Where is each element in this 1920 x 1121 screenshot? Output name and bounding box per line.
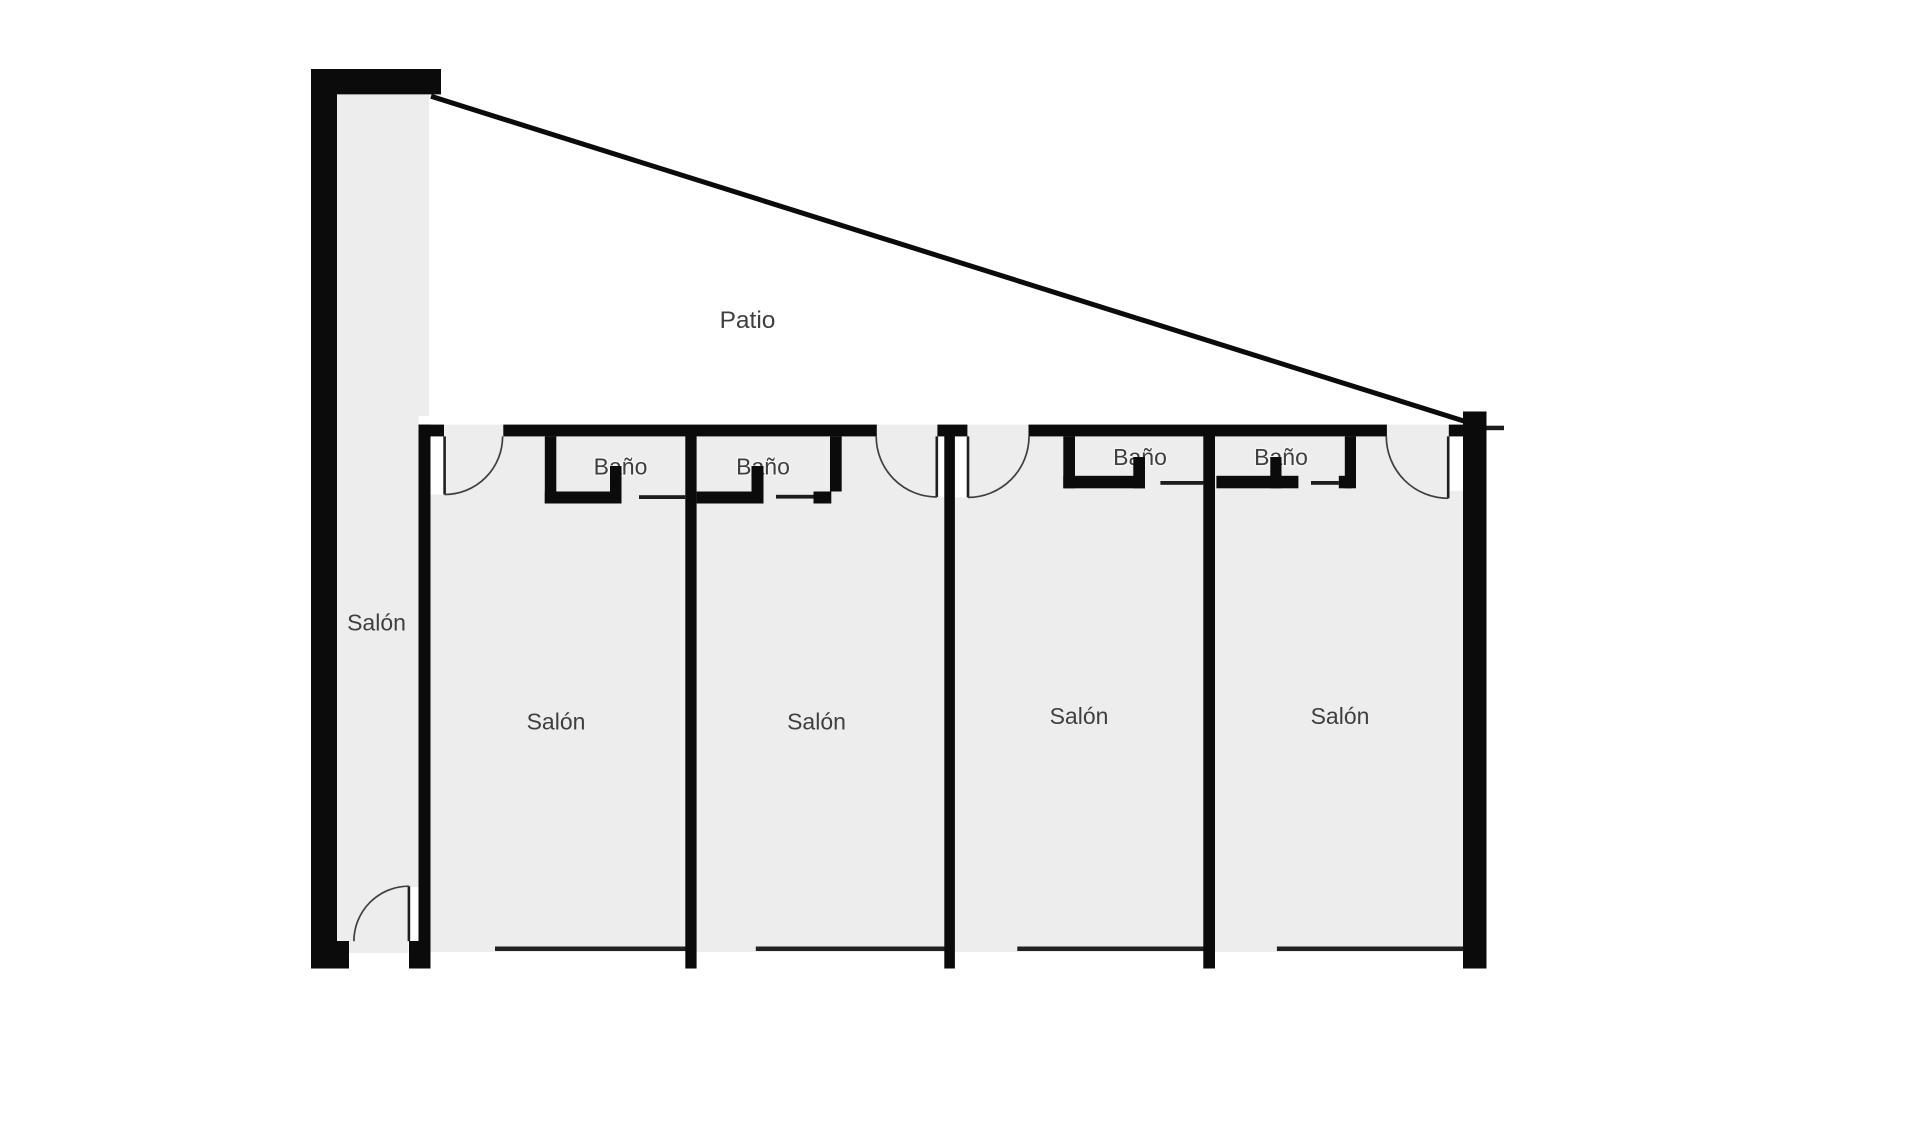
svg-text:Patio: Patio <box>720 307 776 334</box>
svg-text:Salón: Salón <box>347 609 406 635</box>
svg-text:Salón: Salón <box>1311 703 1370 729</box>
svg-text:Salón: Salón <box>787 709 846 735</box>
svg-text:Salón: Salón <box>527 709 586 735</box>
svg-text:Salón: Salón <box>1050 703 1109 729</box>
